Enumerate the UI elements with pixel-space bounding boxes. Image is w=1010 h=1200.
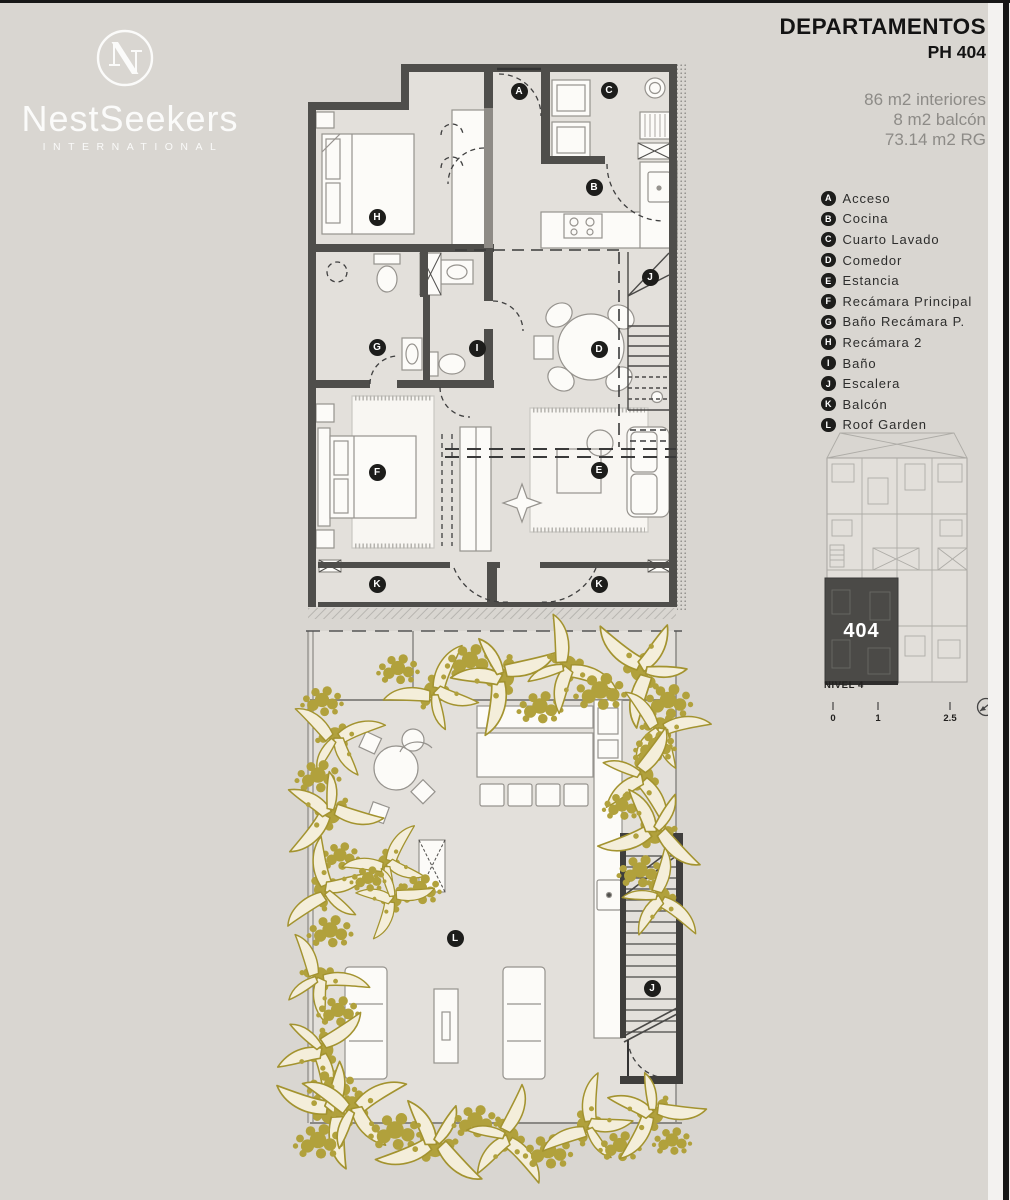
legend-label: Comedor: [843, 253, 903, 268]
legend-item-b: BCocina: [821, 209, 972, 230]
legend-label: Recámara 2: [843, 335, 923, 350]
legend-label: Cuarto Lavado: [843, 232, 940, 247]
legend-letter-badge: I: [821, 356, 836, 371]
legend-item-f: FRecámara Principal: [821, 291, 972, 312]
legend-item-j: JEscalera: [821, 373, 972, 394]
header: DEPARTAMENTOS PH 404: [780, 14, 986, 63]
page-edge-white: [988, 0, 1003, 1200]
legend: AAccesoBCocinaCCuarto LavadoDComedorEEst…: [821, 188, 972, 435]
legend-label: Cocina: [843, 211, 889, 226]
legend-letter-badge: H: [821, 335, 836, 350]
legend-label: Balcón: [843, 397, 888, 412]
legend-label: Baño: [843, 356, 877, 371]
scale-tick-2: 2.5: [940, 713, 960, 724]
legend-item-l: LRoof Garden: [821, 415, 972, 436]
area-balcony: 8 m2 balcón: [864, 110, 986, 130]
scale-bar: [833, 702, 950, 710]
legend-label: Roof Garden: [843, 417, 927, 432]
page-edge-top: [0, 0, 1010, 3]
brand-name: NestSeekers: [10, 100, 250, 138]
unit-number-label: 404: [825, 620, 898, 643]
building-locator-map: [825, 433, 995, 716]
legend-item-h: HRecámara 2: [821, 332, 972, 353]
legend-letter-badge: G: [821, 315, 836, 330]
legend-item-e: EEstancia: [821, 270, 972, 291]
legend-letter-badge: K: [821, 397, 836, 412]
level-label: NIVEL 4: [824, 680, 864, 691]
brand-subtitle: INTERNATIONAL: [10, 141, 250, 153]
unit-title: PH 404: [780, 42, 986, 63]
legend-item-k: KBalcón: [821, 394, 972, 415]
upper-floor-plan: [308, 64, 688, 619]
legend-letter-badge: L: [821, 418, 836, 433]
flyer-page: { "brand": { "name": "NestSeekers", "sub…: [0, 0, 1010, 1200]
area-roofgarden: 73.14 m2 RG: [864, 130, 986, 150]
roof-garden-plan: [259, 606, 719, 1197]
legend-label: Acceso: [843, 191, 891, 206]
legend-item-i: IBaño: [821, 353, 972, 374]
legend-letter-badge: F: [821, 294, 836, 309]
legend-letter-badge: J: [821, 376, 836, 391]
legend-item-d: DComedor: [821, 250, 972, 271]
legend-item-c: CCuarto Lavado: [821, 229, 972, 250]
legend-letter-badge: A: [821, 191, 836, 206]
legend-label: Baño Recámara P.: [843, 314, 966, 329]
scale-tick-0: 0: [823, 713, 843, 724]
brand-block: NestSeekers INTERNATIONAL: [10, 22, 250, 153]
legend-letter-badge: B: [821, 212, 836, 227]
area-interior: 86 m2 interiores: [864, 90, 986, 110]
floor-plan-graphics: [0, 0, 1010, 1200]
legend-letter-badge: C: [821, 232, 836, 247]
legend-label: Escalera: [843, 376, 901, 391]
legend-letter-badge: E: [821, 273, 836, 288]
legend-item-a: AAcceso: [821, 188, 972, 209]
area-summary: 86 m2 interiores 8 m2 balcón 73.14 m2 RG: [864, 90, 986, 150]
legend-letter-badge: D: [821, 253, 836, 268]
legend-item-g: GBaño Recámara P.: [821, 312, 972, 333]
legend-label: Recámara Principal: [843, 294, 973, 309]
scale-tick-1: 1: [868, 713, 888, 724]
legend-label: Estancia: [843, 273, 900, 288]
page-title: DEPARTAMENTOS: [780, 14, 986, 40]
